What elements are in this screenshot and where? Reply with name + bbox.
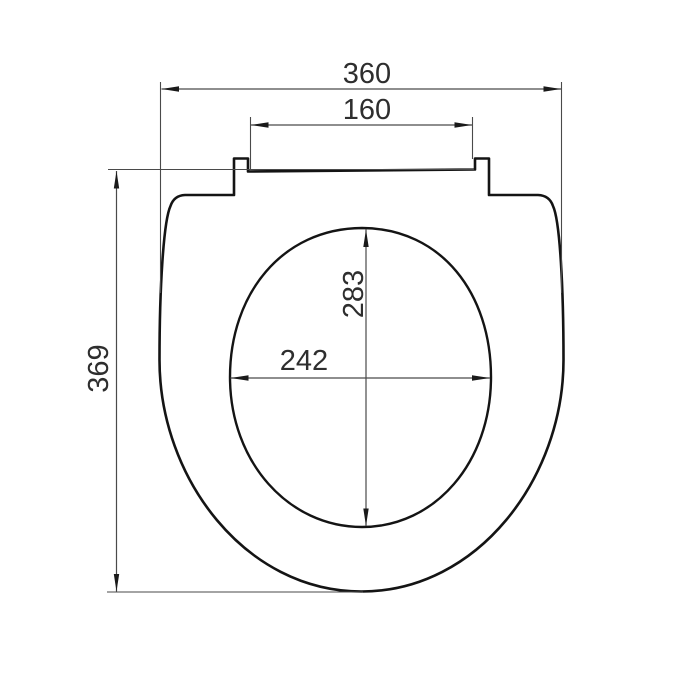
arrow-left-icon [251, 122, 269, 127]
dim-overall-depth: 369 [83, 170, 474, 593]
dim-label-overall-width: 360 [343, 58, 391, 90]
technical-drawing-canvas: 360 160 369 283 [0, 0, 700, 675]
arrow-left-icon [231, 375, 249, 380]
arrow-up-icon [114, 171, 119, 189]
arrow-right-icon [544, 86, 562, 91]
arrow-down-icon [114, 574, 119, 592]
dim-opening-width: 242 [231, 345, 491, 381]
arrow-up-icon [363, 230, 368, 248]
arrow-down-icon [363, 509, 368, 527]
dim-label-overall-depth: 369 [83, 344, 115, 392]
arrow-right-icon [472, 375, 490, 380]
dim-label-opening-depth: 283 [338, 270, 370, 318]
seat-dimension-drawing: 360 160 369 283 [0, 0, 700, 675]
dim-label-hinge-width: 160 [343, 94, 391, 126]
dim-hinge-width: 160 [251, 94, 473, 170]
arrow-left-icon [162, 86, 180, 91]
arrow-right-icon [455, 122, 473, 127]
dim-label-opening-width: 242 [280, 345, 328, 377]
